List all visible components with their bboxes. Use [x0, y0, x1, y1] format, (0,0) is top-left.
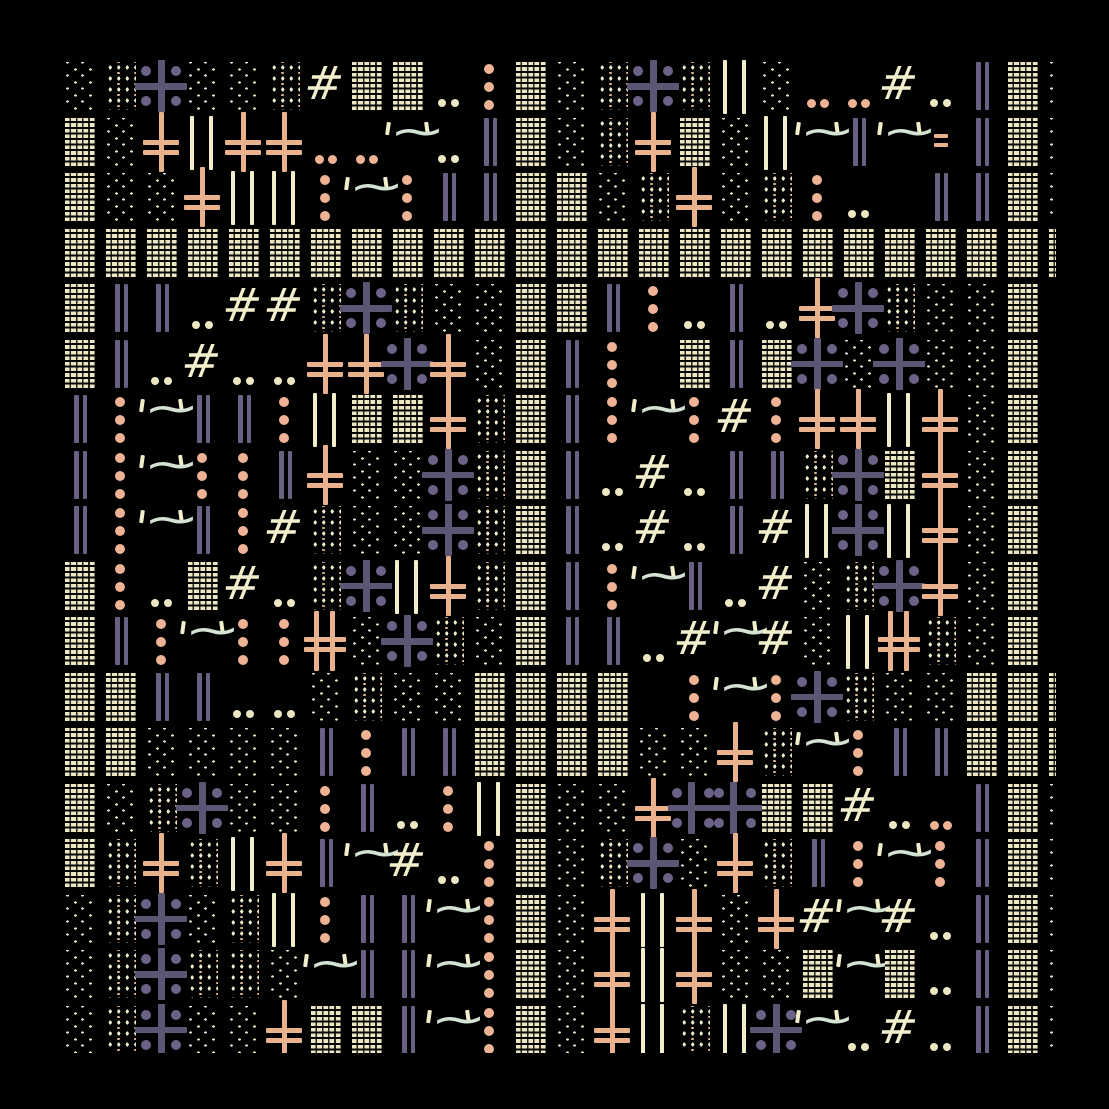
tile-weave-block [65, 617, 95, 665]
tile-purple-bar-pair [188, 506, 216, 554]
bar-stroke [873, 361, 925, 368]
round-dot [171, 899, 181, 909]
plus-glyph [340, 282, 392, 334]
round-dot [156, 637, 166, 647]
tile-quoted-tilde: ~ [639, 562, 667, 610]
bar-stroke [935, 173, 940, 221]
tile-purple-bar-pair [270, 451, 298, 499]
bar-stroke [484, 118, 489, 166]
bar-stroke [976, 118, 981, 166]
tile-hash-glyph: # [229, 284, 257, 332]
round-dot [797, 707, 807, 717]
round-dot [451, 99, 459, 107]
tile-purple-bar-pair [598, 284, 626, 332]
tile-weave-block [65, 173, 95, 221]
tile-cream-bar-pair [762, 118, 790, 166]
salmon-cross-glyph [430, 334, 466, 394]
quoted-tilde-glyph: ~ [631, 566, 675, 600]
quoted-tilde-glyph: ~ [795, 732, 839, 766]
tile-sparse-dot-grid [188, 895, 218, 945]
tile-salmon-dot-column [598, 395, 626, 443]
tile-purple-plus-with-dots [844, 284, 872, 332]
tile-cream-dot-pair [680, 451, 708, 499]
tile-weave-block [516, 340, 546, 388]
bar-stroke [250, 837, 254, 891]
tile-sparse-dot-grid [680, 728, 710, 778]
tile-cream-bar-pair [803, 506, 831, 554]
plus-glyph [627, 837, 679, 889]
tile-weave-block [967, 728, 997, 776]
round-dot [115, 564, 125, 574]
round-dot [943, 821, 952, 830]
tile-hash-glyph: # [188, 340, 216, 388]
round-dot [697, 488, 705, 496]
salmon-cross-glyph [799, 278, 835, 338]
bar-stroke [676, 972, 712, 977]
round-dot [697, 321, 705, 329]
bar-stroke [840, 417, 876, 422]
tile-weave-block [967, 229, 997, 277]
tile-sparse-dot-grid [229, 728, 259, 778]
salmon-cross-glyph [676, 944, 712, 1004]
bar-stroke [329, 839, 334, 887]
round-dot [428, 510, 438, 520]
generative-textile-artwork: ##~~~~###~~#~#~####~#~#~#~~#~#~~#~#~~~~~… [0, 0, 1109, 1109]
round-dot [443, 822, 453, 832]
tile-salmon-dot-column [229, 451, 257, 499]
round-dot [689, 675, 699, 685]
bar-stroke [566, 506, 571, 554]
round-dot [868, 318, 878, 328]
round-dot [320, 897, 330, 907]
tile-salmon-double-cross [926, 395, 954, 443]
tile-purple-bar-pair [967, 118, 995, 166]
tile-weave-block [65, 562, 95, 610]
tile-salmon-dot-column [229, 506, 257, 554]
bar-stroke [594, 1028, 630, 1033]
tile-purple-bar-pair [106, 340, 134, 388]
salmon-cross-glyph [266, 112, 302, 172]
bar-stroke [635, 806, 671, 811]
tile-weave-block [1008, 839, 1038, 887]
tile-weave-block [1008, 62, 1038, 110]
tile-salmon-double-cross [803, 395, 831, 443]
round-dot [402, 211, 412, 221]
tile-cream-bar-pair [721, 62, 749, 110]
bar-stroke [575, 340, 580, 388]
bar-stroke [443, 173, 448, 221]
salmon-cross-glyph [348, 334, 384, 394]
quoted-tilde-glyph: ~ [426, 899, 470, 933]
tile-dense-dot-grid [393, 284, 423, 332]
bar-stroke [124, 284, 129, 332]
round-dot [287, 377, 295, 385]
round-dot [171, 96, 181, 106]
bar-stroke [742, 1004, 746, 1058]
bar-stroke [668, 805, 764, 812]
round-dot [192, 321, 200, 329]
plus-glyph [873, 560, 925, 612]
round-dot [607, 415, 617, 425]
bar-stroke [272, 893, 276, 947]
quoted-tilde-glyph: ~ [139, 399, 183, 433]
round-dot [848, 1043, 856, 1051]
bar-stroke [739, 506, 744, 554]
tile-salmon-dot-column [598, 340, 626, 388]
bar-stroke [887, 393, 891, 447]
salmon-cross-glyph [717, 833, 753, 893]
tile-purple-bar-pair [393, 950, 421, 998]
round-dot [115, 453, 125, 463]
tile-salmon-dot-pair [803, 62, 831, 110]
tile-weave-block [393, 229, 423, 277]
tile-sparse-dot-grid [229, 1006, 259, 1056]
tile-sparse-dot-grid [557, 118, 587, 168]
tile-salmon-dot-column [106, 395, 134, 443]
plus-glyph [832, 504, 884, 556]
round-dot [909, 596, 919, 606]
bar-stroke [430, 417, 466, 422]
salmon-cross-glyph [676, 889, 712, 949]
bar-stroke [575, 506, 580, 554]
tile-salmon-double-cross [844, 395, 872, 443]
tile-salmon-double-cross [434, 395, 462, 443]
round-dot [443, 804, 453, 814]
bar-stroke [739, 451, 744, 499]
bar-stroke [124, 340, 129, 388]
bar-stroke [660, 1004, 664, 1058]
tile-dense-dot-grid [762, 839, 792, 887]
tile-purple-bar-pair [352, 950, 380, 998]
tile-sparse-dot-grid [393, 451, 423, 501]
quoted-tilde-glyph: ~ [836, 954, 880, 988]
round-dot [274, 599, 282, 607]
bar-stroke [156, 673, 161, 721]
round-dot [648, 286, 658, 296]
bar-stroke [976, 62, 981, 110]
tile-purple-bar-pair [926, 728, 954, 776]
bar-stroke [477, 782, 481, 836]
tile-dense-dot-grid [598, 839, 628, 887]
tile-cream-dot-pair [147, 340, 175, 388]
tile-sparse-dot-grid [639, 728, 669, 778]
bar-stroke [370, 895, 375, 943]
tile-weave-block [516, 284, 546, 332]
frame-left [0, 0, 62, 1109]
bar-stroke [862, 118, 867, 166]
tile-sparse-dot-grid [393, 506, 423, 556]
tile-weave-block [598, 229, 628, 277]
bar-stroke [976, 173, 981, 221]
plus-glyph [873, 338, 925, 390]
tile-salmon-dot-column [188, 451, 216, 499]
bar-stroke [676, 927, 712, 932]
bar-stroke [575, 617, 580, 665]
salmon-cross-glyph [922, 389, 958, 449]
tile-weave-block [65, 118, 95, 166]
round-dot [663, 66, 673, 76]
plus-glyph [791, 338, 843, 390]
tile-purple-bar-pair [598, 617, 626, 665]
tile-salmon-double-cross [639, 784, 667, 832]
tile-dense-dot-grid [434, 617, 464, 665]
salmon-cross-glyph [430, 389, 466, 449]
hash-glyph: # [876, 1003, 921, 1051]
round-dot [182, 788, 192, 798]
tile-purple-bar-pair [352, 784, 380, 832]
bar-stroke [894, 728, 899, 776]
tile-weave-block [598, 728, 628, 776]
round-dot [376, 318, 386, 328]
bar-stroke [165, 284, 170, 332]
tile-salmon-double-cross [598, 895, 626, 943]
tile-weave-block [516, 506, 546, 554]
tile-salmon-dot-column [475, 839, 503, 887]
bar-stroke [764, 116, 768, 170]
round-dot [879, 596, 889, 606]
tile-weave-block [516, 950, 546, 998]
round-dot [704, 788, 714, 798]
tile-purple-bar-pair [967, 784, 995, 832]
bar-stroke [184, 195, 220, 200]
tile-cream-dot-pair [680, 506, 708, 554]
tile-weave-block [65, 229, 95, 277]
bar-stroke [758, 917, 794, 922]
round-dot [233, 377, 241, 385]
round-dot [714, 818, 724, 828]
bar-stroke [922, 473, 958, 478]
bar-stroke [566, 617, 571, 665]
round-dot [812, 211, 822, 221]
tile-cream-dot-pair [147, 562, 175, 610]
tile-sparse-dot-grid [967, 284, 997, 334]
tile-weave-block [762, 784, 792, 832]
round-dot [643, 654, 651, 662]
tile-weave-block [352, 229, 382, 277]
round-dot [156, 619, 166, 629]
round-dot [171, 1010, 181, 1020]
round-dot [930, 932, 938, 940]
salmon-cross-glyph [922, 500, 958, 560]
tile-quoted-tilde: ~ [352, 839, 380, 887]
tile-quoted-tilde: ~ [352, 173, 380, 221]
round-dot [484, 82, 494, 92]
bar-stroke [791, 361, 843, 368]
tile-weave-block [1008, 451, 1038, 499]
tile-cream-bar-pair [229, 839, 257, 887]
tile-dense-dot-grid [147, 784, 177, 832]
tile-cream-bar-pair [721, 1006, 749, 1054]
tile-cream-dot-pair [926, 1006, 954, 1054]
tile-cream-bar-pair [639, 950, 667, 998]
bar-stroke [115, 617, 120, 665]
round-dot [320, 822, 330, 832]
round-dot [868, 485, 878, 495]
tile-weave-block [762, 340, 792, 388]
hash-glyph: # [753, 614, 798, 662]
round-dot [879, 344, 889, 354]
bar-stroke [484, 173, 489, 221]
tile-purple-plus-with-dots [844, 506, 872, 554]
round-dot [607, 342, 617, 352]
tile-weave-block [557, 229, 587, 277]
bar-stroke [906, 504, 910, 558]
tile-purple-plus-with-dots [147, 895, 175, 943]
tile-hash-glyph: # [311, 62, 339, 110]
tile-weave-block [475, 673, 505, 721]
bar-stroke [231, 171, 235, 225]
round-dot [663, 843, 673, 853]
bar-stroke [74, 451, 79, 499]
tile-purple-bar-pair [352, 895, 380, 943]
bar-stroke [197, 673, 202, 721]
tile-sparse-dot-grid [967, 562, 997, 612]
round-dot [115, 526, 125, 536]
tile-weave-block [967, 673, 997, 721]
tile-purple-bar-pair [557, 451, 585, 499]
bar-stroke [812, 839, 817, 887]
tile-weave-block [885, 451, 915, 499]
tile-purple-bar-pair [803, 839, 831, 887]
bar-stroke [935, 728, 940, 776]
bar-stroke [660, 893, 664, 947]
bar-stroke [805, 504, 809, 558]
tile-purple-bar-pair [188, 395, 216, 443]
tile-salmon-double-cross [762, 895, 790, 943]
tile-sparse-dot-grid [762, 950, 792, 1000]
round-dot [115, 433, 125, 443]
tile-cream-bar-pair [393, 562, 421, 610]
bar-stroke [717, 760, 753, 765]
tile-quoted-tilde: ~ [844, 950, 872, 998]
tile-sparse-dot-grid [106, 118, 136, 168]
round-dot [879, 374, 889, 384]
tile-weave-block [885, 229, 915, 277]
plus-glyph [381, 338, 433, 390]
round-dot [771, 433, 781, 443]
salmon-cross-glyph [922, 445, 958, 505]
round-dot [417, 374, 427, 384]
tile-cream-dot-pair [680, 284, 708, 332]
bar-stroke [304, 637, 346, 642]
bar-stroke [903, 728, 908, 776]
bar-stroke [320, 728, 325, 776]
bar-stroke [566, 395, 571, 443]
bar-stroke [430, 594, 466, 599]
tile-purple-plus-with-dots [434, 451, 462, 499]
bar-stroke [430, 372, 466, 377]
tile-salmon-dot-pair [311, 118, 339, 166]
bar-stroke [575, 395, 580, 443]
tile-weave-block [516, 395, 546, 443]
frame-top [0, 0, 1109, 50]
tile-dense-dot-grid [844, 562, 874, 610]
tile-weave-block [393, 62, 423, 110]
tile-salmon-dot-column [844, 839, 872, 887]
salmon-cross-glyph [184, 167, 220, 227]
bar-stroke [395, 560, 399, 614]
round-dot [838, 485, 848, 495]
tile-weave-block [516, 728, 546, 776]
tile-cream-dot-pair [926, 950, 954, 998]
bar-stroke [206, 673, 211, 721]
round-dot [930, 1043, 938, 1051]
plus-glyph [832, 449, 884, 501]
tile-dense-dot-grid [598, 62, 628, 110]
tile-weave-block [1008, 506, 1038, 554]
bar-stroke [414, 560, 418, 614]
tile-sparse-dot-grid [598, 173, 628, 223]
tile-weave-block [1008, 728, 1038, 776]
tile-dense-dot-grid [106, 1006, 136, 1054]
bar-stroke [944, 728, 949, 776]
tile-sparse-dot-grid [65, 1006, 95, 1056]
round-dot [838, 318, 848, 328]
tile-quoted-tilde: ~ [147, 451, 175, 499]
tile-weave-block [229, 229, 259, 277]
quoted-tilde-glyph: ~ [631, 399, 675, 433]
double-plus-glyph [668, 782, 764, 834]
round-dot [714, 788, 724, 798]
bar-stroke [143, 871, 179, 876]
round-dot [861, 210, 869, 218]
tile-salmon-double-cross [311, 451, 339, 499]
bar-stroke [676, 982, 712, 987]
tile-weave-block [65, 340, 95, 388]
quoted-tilde-glyph: ~ [836, 899, 880, 933]
tile-quoted-tilde: ~ [885, 118, 913, 166]
tile-weave-block [106, 229, 136, 277]
tile-purple-bar-pair [967, 62, 995, 110]
tile-weave-block [1008, 284, 1038, 332]
quoted-tilde-glyph: ~ [303, 954, 347, 988]
round-dot [141, 899, 151, 909]
tile-weave-block [516, 839, 546, 887]
tile-sparse-dot-grid [557, 784, 587, 834]
tile-hash-glyph: # [680, 617, 708, 665]
round-dot [443, 786, 453, 796]
tile-salmon-double-cross [680, 173, 708, 221]
bar-stroke [594, 972, 630, 977]
tile-salmon-dot-column [475, 62, 503, 110]
tile-purple-bar-pair [762, 451, 790, 499]
bar-stroke [402, 950, 407, 998]
tile-purple-bar-pair [967, 950, 995, 998]
tile-purple-bar-pair [434, 728, 462, 776]
tile-salmon-double-cross [721, 839, 749, 887]
tile-cream-dot-pair [229, 673, 257, 721]
round-dot [771, 415, 781, 425]
tile-weave-block [65, 728, 95, 776]
tile-weave-block [106, 673, 136, 721]
tile-weave-block [1008, 617, 1038, 665]
tile-salmon-double-cross [434, 340, 462, 388]
round-dot [615, 488, 623, 496]
bar-stroke [176, 805, 228, 812]
tile-weave-block [1008, 229, 1038, 277]
tile-sparse-dot-grid [65, 895, 95, 945]
tile-quoted-tilde: ~ [147, 506, 175, 554]
tile-purple-bar-pair [147, 284, 175, 332]
tile-dense-dot-grid [475, 395, 505, 443]
tile-hash-glyph: # [762, 617, 790, 665]
quoted-tilde-glyph: ~ [344, 843, 388, 877]
round-dot [346, 566, 356, 576]
round-dot [141, 66, 151, 76]
round-dot [115, 544, 125, 554]
hash-glyph: # [220, 281, 265, 329]
bar-stroke [641, 1004, 645, 1058]
